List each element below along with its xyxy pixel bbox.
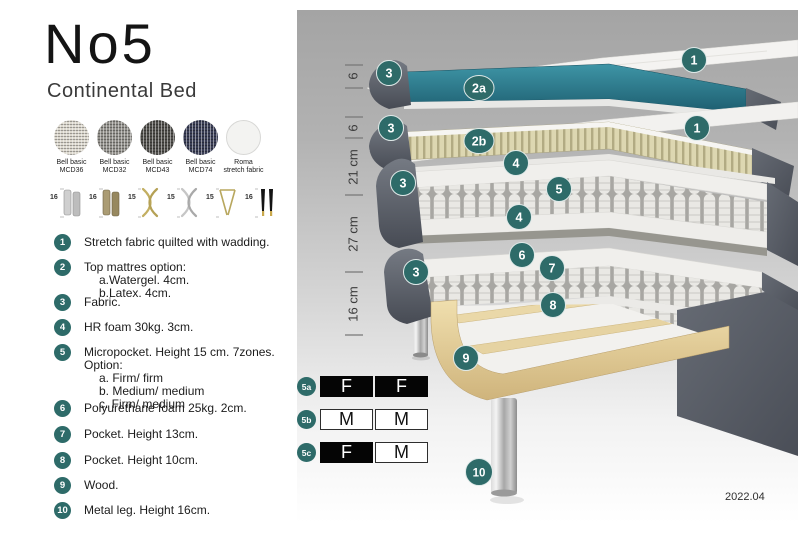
firmness-row: 5c F M: [297, 442, 428, 463]
svg-text:2b: 2b: [472, 135, 487, 149]
callout-badge: 3: [404, 260, 429, 285]
base-box-layer: [384, 248, 798, 504]
legend-number-badge: 7: [54, 426, 71, 443]
base-side-fabric: [677, 292, 798, 456]
callout-badge: 2a: [464, 76, 494, 101]
legend-item: 9 Wood.: [54, 477, 118, 494]
callout-badge: 1: [682, 48, 707, 73]
legend-line: Fabric.: [84, 295, 121, 309]
callout-badge: 4: [507, 205, 532, 230]
callout-badge: 4: [504, 151, 529, 176]
legend-item: 6 Polyurethane foam 25kg. 2cm.: [54, 400, 247, 417]
dimension-label: 6: [345, 124, 360, 131]
firmness-row: 5a F F: [297, 376, 428, 397]
legend-line: Pocket. Height 13cm.: [84, 427, 198, 441]
callout-badge: 9: [454, 346, 479, 371]
legend-text: Pocket. Height 13cm.: [84, 426, 198, 441]
svg-text:3: 3: [400, 177, 407, 191]
legend-line: HR foam 30kg. 3cm.: [84, 320, 193, 334]
legend-line: Stretch fabric quilted with wadding.: [84, 235, 269, 249]
svg-text:3: 3: [413, 266, 420, 280]
svg-text:2a: 2a: [472, 82, 487, 96]
svg-text:1: 1: [694, 122, 701, 136]
legend-text: Polyurethane foam 25kg. 2cm.: [84, 400, 247, 415]
dimension-ruler: 6 6 21 cm 27 cm 16 cm: [345, 65, 363, 335]
legend-text: Metal leg. Height 16cm.: [84, 502, 210, 517]
legend-line: Pocket. Height 10cm.: [84, 453, 198, 467]
dimension-label: 27 cm: [345, 216, 360, 251]
svg-text:9: 9: [463, 352, 470, 366]
firmness-row-label: 5c: [297, 443, 316, 462]
legend-item: 10 Metal leg. Height 16cm.: [54, 502, 210, 519]
callout-badge: 3: [391, 171, 416, 196]
legend-line: Metal leg. Height 16cm.: [84, 503, 210, 517]
svg-text:5: 5: [556, 183, 563, 197]
dimension-label: 21 cm: [345, 149, 360, 184]
legend-item: 4 HR foam 30kg. 3cm.: [54, 319, 193, 336]
callout-badge: 3: [379, 116, 404, 141]
legend-number-badge: 10: [54, 502, 71, 519]
legend-text: HR foam 30kg. 3cm.: [84, 319, 193, 334]
firmness-cell: F: [375, 376, 428, 397]
svg-text:6: 6: [519, 249, 526, 263]
legend-number-badge: 9: [54, 477, 71, 494]
legend-number-badge: 8: [54, 452, 71, 469]
legend-text: Pocket. Height 10cm.: [84, 452, 198, 467]
infographic-page: No5 Continental Bed Bell basic MCD36 Bel…: [0, 0, 800, 533]
svg-text:1: 1: [691, 54, 698, 68]
firmness-cell: M: [375, 442, 428, 463]
svg-text:4: 4: [516, 211, 523, 225]
callout-badge: 6: [510, 243, 535, 268]
info-column: No5 Continental Bed Bell basic MCD36 Bel…: [0, 0, 297, 533]
callout-badge: 7: [540, 256, 565, 281]
legend-number-badge: 4: [54, 319, 71, 336]
legend-number-badge: 3: [54, 294, 71, 311]
svg-text:10: 10: [473, 468, 486, 480]
callout-badge: 3: [377, 61, 402, 86]
svg-text:7: 7: [549, 262, 556, 276]
legend-line: Wood.: [84, 478, 118, 492]
legend-line: Top mattres option:: [84, 260, 186, 274]
callout-badge: 5: [547, 177, 572, 202]
svg-text:8: 8: [550, 299, 557, 313]
diagram-panel: 6 6 21 cm 27 cm 16 cm: [297, 10, 798, 523]
legend-number-badge: 6: [54, 400, 71, 417]
firmness-cell: M: [375, 409, 428, 430]
legend-item: 7 Pocket. Height 13cm.: [54, 426, 198, 443]
legend-text: Wood.: [84, 477, 118, 492]
legend-number-badge: 2: [54, 259, 71, 276]
firmness-row-label: 5a: [297, 377, 316, 396]
svg-text:4: 4: [513, 157, 520, 171]
version-label: 2022.04: [725, 491, 765, 503]
legend-number-badge: 5: [54, 344, 71, 361]
svg-text:3: 3: [386, 67, 393, 81]
legend-text: Stretch fabric quilted with wadding.: [84, 234, 269, 249]
dimension-label: 16 cm: [345, 286, 360, 321]
firmness-row-label: 5b: [297, 410, 316, 429]
legend-item: 1 Stretch fabric quilted with wadding.: [54, 234, 269, 251]
callout-badge: 10: [466, 459, 493, 486]
legend-item: 8 Pocket. Height 10cm.: [54, 452, 198, 469]
legend-line: Micropocket. Height 15 cm. 7zones. Optio…: [84, 345, 275, 372]
firmness-cell: F: [320, 376, 373, 397]
firmness-row: 5b M M: [297, 409, 428, 430]
legend-number-badge: 1: [54, 234, 71, 251]
legend-text: Fabric.: [84, 294, 121, 309]
firmness-cell: M: [320, 409, 373, 430]
firmness-cell: F: [320, 442, 373, 463]
svg-text:3: 3: [388, 122, 395, 136]
callout-badge: 8: [541, 293, 566, 318]
callout-badge: 2b: [464, 129, 494, 154]
front-metal-leg: [491, 398, 517, 494]
legend-list: 1 Stretch fabric quilted with wadding. 2…: [0, 0, 297, 533]
legend-line: Polyurethane foam 25kg. 2cm.: [84, 401, 247, 415]
dimension-label: 6: [345, 72, 360, 79]
callout-badge: 1: [685, 116, 710, 141]
legend-item: 3 Fabric.: [54, 294, 121, 311]
